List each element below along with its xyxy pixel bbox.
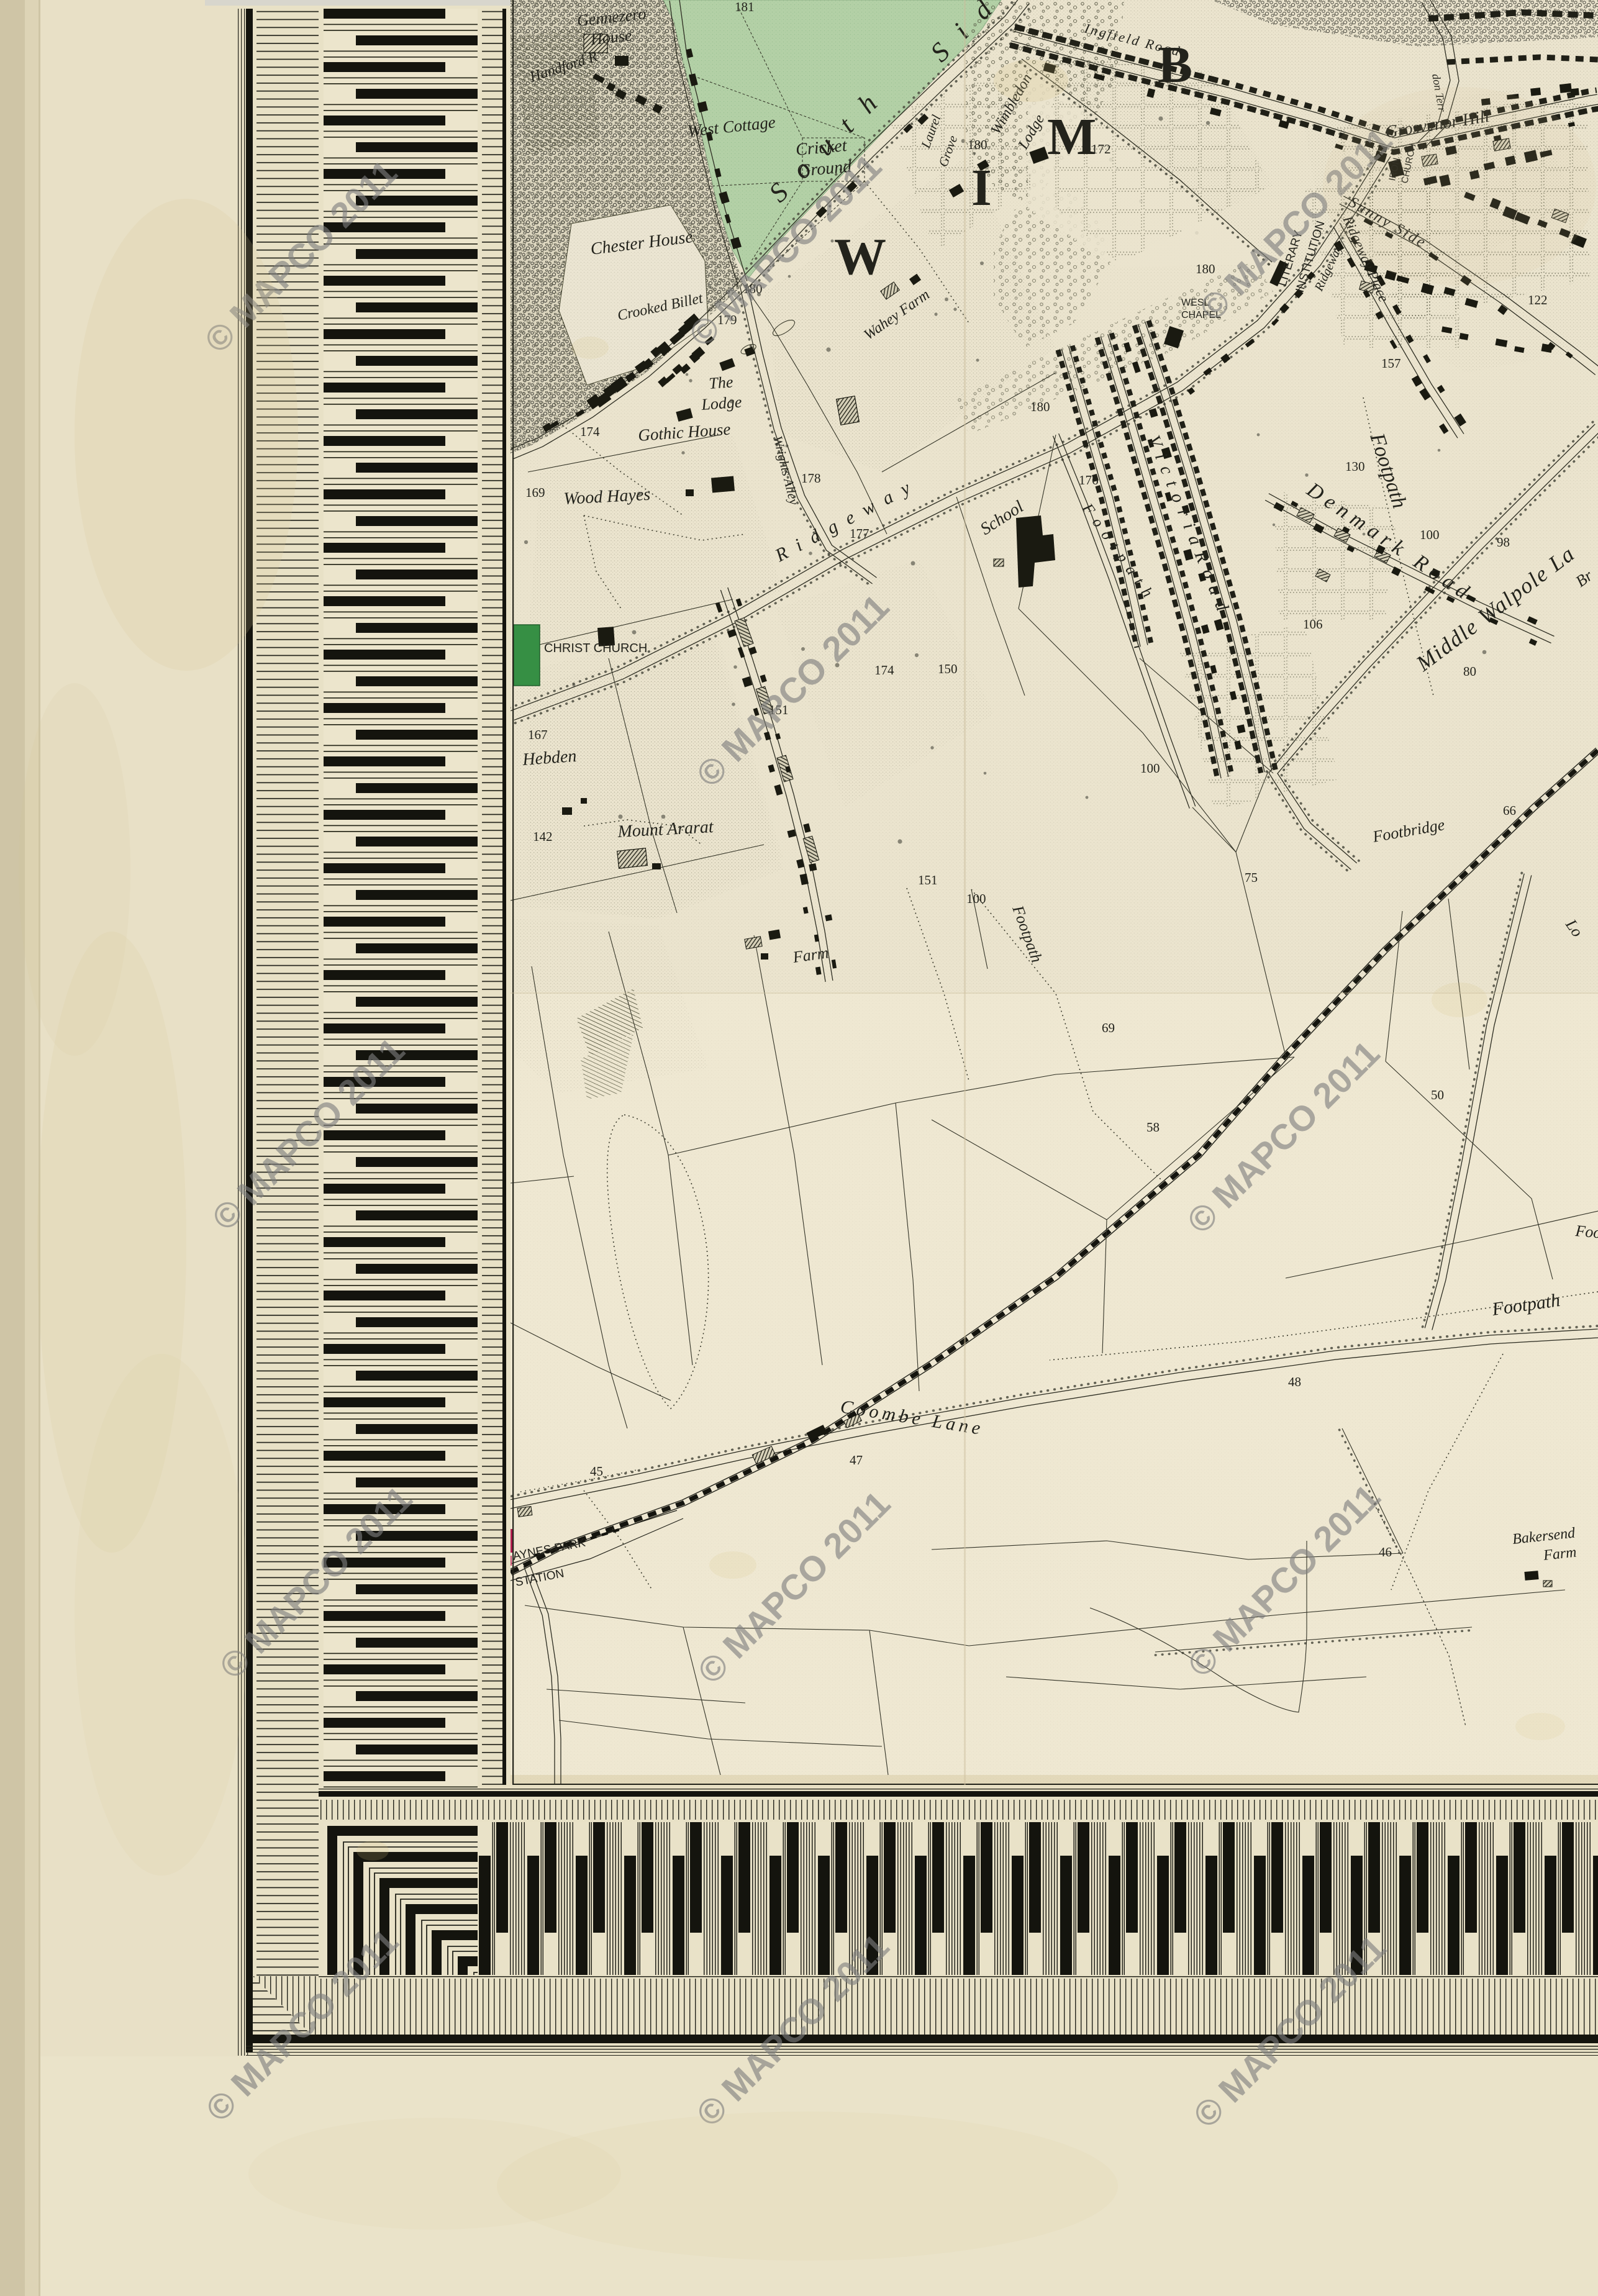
svg-text:45: 45	[590, 1464, 603, 1479]
svg-text:Footp: Footp	[1574, 1222, 1598, 1243]
svg-text:58: 58	[1146, 1120, 1160, 1135]
svg-text:48: 48	[1288, 1374, 1301, 1389]
svg-text:46: 46	[1379, 1545, 1392, 1559]
svg-text:47: 47	[850, 1453, 863, 1468]
svg-text:69: 69	[1102, 1020, 1115, 1035]
svg-text:50: 50	[1431, 1087, 1444, 1102]
